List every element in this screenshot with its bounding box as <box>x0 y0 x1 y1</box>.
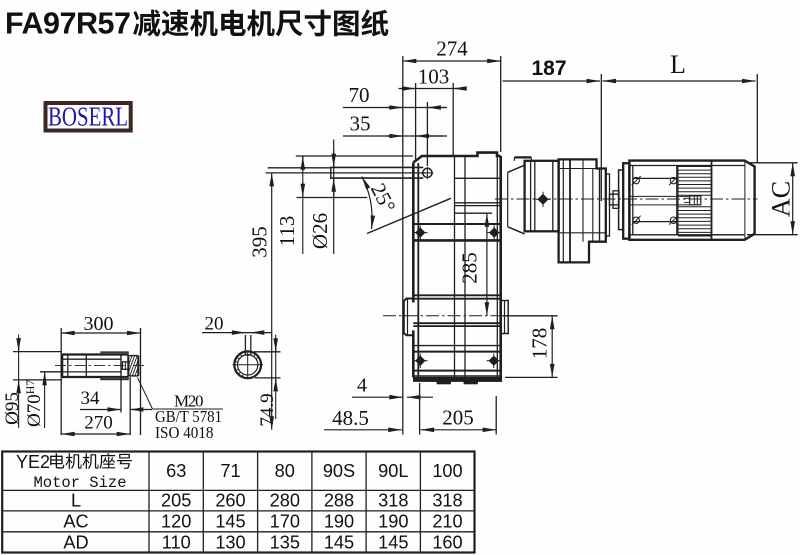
svg-text:145: 145 <box>324 533 354 553</box>
svg-text:71: 71 <box>220 461 240 481</box>
svg-text:34: 34 <box>81 388 101 409</box>
svg-text:110: 110 <box>162 533 191 553</box>
svg-text:288: 288 <box>324 491 354 511</box>
svg-text:178: 178 <box>528 328 552 360</box>
svg-text:205: 205 <box>161 491 191 511</box>
svg-text:YE2: YE2 <box>16 452 50 472</box>
svg-text:395: 395 <box>248 226 272 258</box>
svg-text:300: 300 <box>84 313 114 335</box>
svg-text:318: 318 <box>378 491 408 511</box>
svg-text:FA97R57: FA97R57 <box>5 7 131 41</box>
svg-text:318: 318 <box>432 491 462 511</box>
svg-text:48.5: 48.5 <box>332 406 369 430</box>
svg-text:70: 70 <box>349 83 370 107</box>
svg-text:260: 260 <box>215 491 245 511</box>
svg-text:210: 210 <box>432 512 462 532</box>
svg-text:270: 270 <box>84 413 113 434</box>
svg-text:120: 120 <box>161 512 191 532</box>
svg-text:35: 35 <box>350 112 371 136</box>
svg-text:285: 285 <box>458 252 482 284</box>
svg-text:4: 4 <box>357 375 367 397</box>
svg-text:Ø26: Ø26 <box>308 213 332 249</box>
svg-text:AC: AC <box>63 512 88 532</box>
svg-text:BOSERL: BOSERL <box>48 102 128 132</box>
svg-text:L: L <box>71 491 81 511</box>
svg-text:100: 100 <box>432 461 462 481</box>
svg-text:90S: 90S <box>323 461 355 481</box>
svg-text:113: 113 <box>275 216 299 247</box>
svg-text:90L: 90L <box>378 461 408 481</box>
svg-text:280: 280 <box>270 491 300 511</box>
svg-text:205: 205 <box>442 405 474 429</box>
svg-text:L: L <box>670 50 686 79</box>
svg-text:80: 80 <box>275 461 295 481</box>
svg-text:190: 190 <box>378 512 408 532</box>
svg-text:170: 170 <box>270 512 300 532</box>
svg-text:103: 103 <box>418 65 450 89</box>
svg-text:160: 160 <box>432 533 462 553</box>
svg-text:Motor Size: Motor Size <box>33 474 126 492</box>
svg-text:187: 187 <box>531 57 566 80</box>
svg-text:AC: AC <box>767 181 796 217</box>
svg-text:20: 20 <box>205 314 224 335</box>
svg-text:Ø95: Ø95 <box>2 392 23 425</box>
svg-text:74.9: 74.9 <box>257 393 278 426</box>
svg-text:130: 130 <box>215 533 245 553</box>
svg-text:ISO 4018: ISO 4018 <box>155 423 214 442</box>
svg-text:274: 274 <box>436 37 468 61</box>
svg-text:145: 145 <box>378 533 408 553</box>
svg-text:190: 190 <box>324 512 354 532</box>
svg-text:63: 63 <box>166 461 186 481</box>
svg-text:145: 145 <box>215 512 245 532</box>
svg-text:135: 135 <box>270 533 300 553</box>
svg-text:AD: AD <box>63 533 88 553</box>
